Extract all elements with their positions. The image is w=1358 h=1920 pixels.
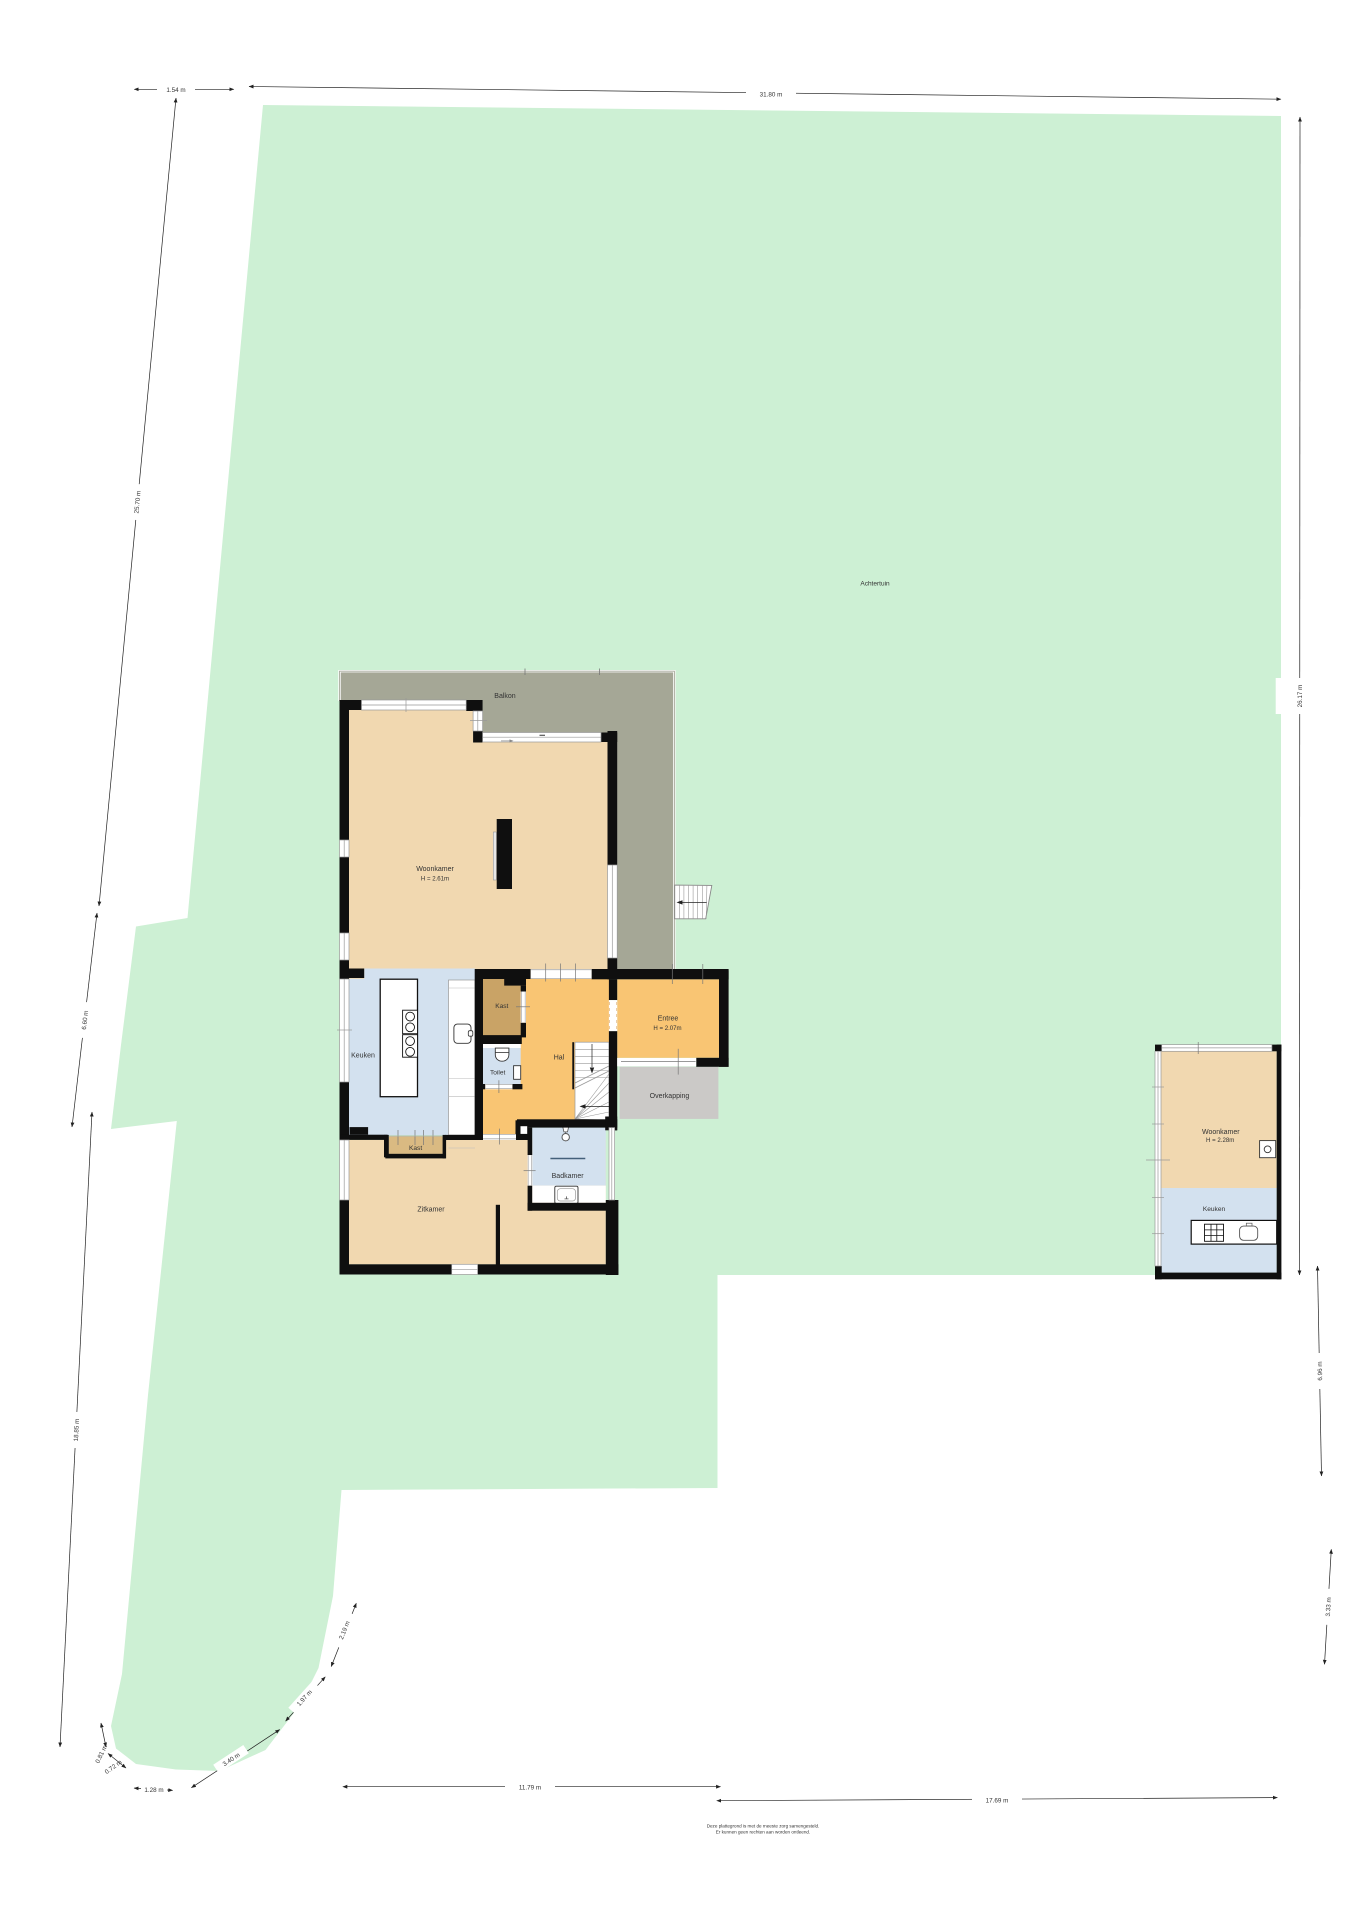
svg-text:Kast: Kast (495, 1003, 508, 1010)
svg-text:3.33 m: 3.33 m (1325, 1597, 1333, 1617)
svg-text:Hal: Hal (554, 1054, 565, 1061)
svg-text:Er kunnen geen rechten aan wor: Er kunnen geen rechten aan worden ontlee… (716, 1830, 811, 1835)
svg-text:1.28 m: 1.28 m (144, 1787, 163, 1794)
svg-text:H = 2.28m: H = 2.28m (1206, 1137, 1234, 1144)
svg-text:26.17 m: 26.17 m (1297, 685, 1304, 708)
svg-text:Deze plattegrond is met de mee: Deze plattegrond is met de meeste zorg s… (707, 1824, 820, 1829)
svg-text:Woonkamer: Woonkamer (1202, 1129, 1240, 1136)
svg-text:Zitkamer: Zitkamer (417, 1206, 445, 1213)
svg-text:Badkamer: Badkamer (552, 1173, 585, 1180)
svg-text:Balkon: Balkon (494, 693, 516, 700)
svg-text:11.79 m: 11.79 m (519, 1785, 541, 1792)
svg-text:H = 2.61m: H = 2.61m (421, 876, 449, 883)
svg-text:Kast: Kast (409, 1145, 422, 1152)
svg-text:Keuken: Keuken (1203, 1206, 1226, 1213)
svg-text:Overkapping: Overkapping (650, 1093, 690, 1100)
svg-text:6.96 m: 6.96 m (1317, 1361, 1324, 1380)
svg-text:17.69 m: 17.69 m (986, 1798, 1009, 1805)
svg-text:Keuken: Keuken (351, 1053, 375, 1060)
svg-text:31.80 m: 31.80 m (760, 92, 783, 99)
svg-text:Woonkamer: Woonkamer (416, 866, 454, 873)
svg-text:1.54 m: 1.54 m (166, 87, 185, 94)
svg-text:Achtertuin: Achtertuin (860, 580, 890, 587)
svg-text:H = 2.07m: H = 2.07m (653, 1025, 681, 1032)
svg-text:Entree: Entree (658, 1016, 679, 1023)
svg-text:Toilet: Toilet (490, 1069, 506, 1076)
svg-text:18.85 m: 18.85 m (73, 1419, 81, 1442)
